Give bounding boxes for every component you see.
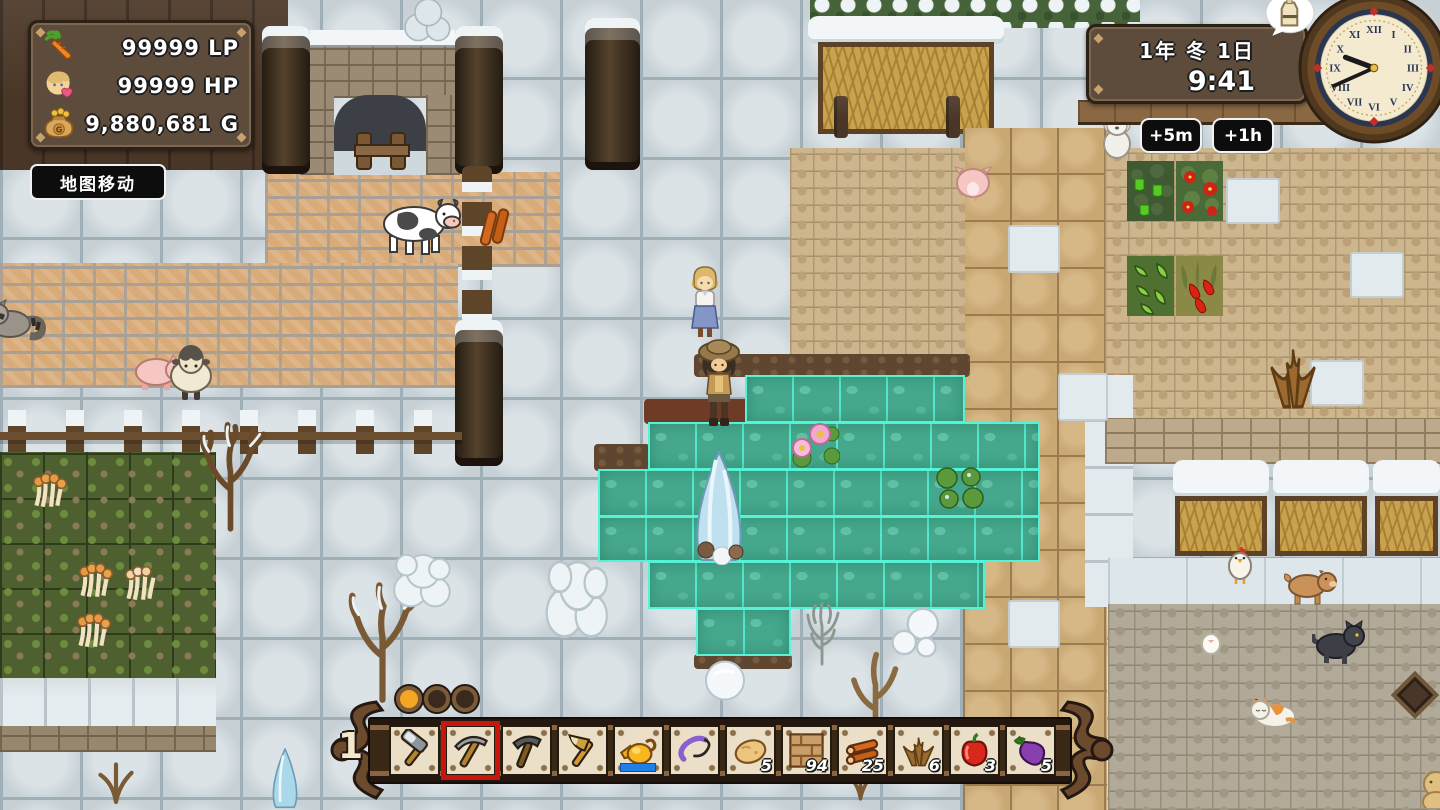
- svg-text:XI: XI: [1349, 30, 1361, 41]
- hammer-icon: [393, 729, 436, 772]
- crop-green-pepper[interactable]: [1127, 160, 1174, 222]
- feeding-stall: [1373, 460, 1440, 560]
- snow-tile: [1350, 252, 1404, 298]
- bare-tree: [188, 412, 273, 537]
- hotbar-slot-axe[interactable]: [557, 725, 608, 776]
- snow-band: [1108, 558, 1440, 608]
- svg-text:V: V: [1390, 97, 1398, 108]
- field-wall: [0, 678, 216, 730]
- mushroom-cluster[interactable]: [26, 472, 72, 510]
- brick-path-band: [0, 263, 458, 388]
- hotbar-slot-eggplant[interactable]: 5: [1005, 725, 1056, 776]
- pond-water-highlight[interactable]: [598, 516, 1040, 562]
- barn-roof-snow: [808, 16, 1004, 44]
- svg-text:VII: VII: [1347, 97, 1363, 108]
- svg-text:VI: VI: [1368, 103, 1380, 114]
- svg-text:XII: XII: [1366, 25, 1382, 36]
- player-character[interactable]: [697, 338, 741, 436]
- feeding-stall: [1173, 460, 1269, 560]
- tan-cat[interactable]: [1416, 770, 1440, 808]
- hotbar-slot-sickle[interactable]: [501, 725, 552, 776]
- snow-tile: [1058, 373, 1108, 421]
- lamppost: [585, 18, 640, 170]
- item-count: 94: [806, 756, 828, 775]
- snow-bush: [388, 538, 460, 616]
- money-bag-icon: G: [43, 106, 75, 142]
- hotbar-bar: 59425635: [368, 717, 1072, 784]
- hotbar-slot-logs[interactable]: 25: [837, 725, 888, 776]
- game-screen: { "hud": { "stats_panel": { "rows": [ {"…: [0, 0, 1440, 810]
- snow-bush: [398, 0, 460, 48]
- hotbar-slot-hammer[interactable]: [389, 725, 440, 776]
- item-count: 25: [862, 756, 884, 775]
- advance-5min-button[interactable]: +5m: [1140, 118, 1202, 153]
- calico-cat[interactable]: [1248, 694, 1298, 730]
- bench: [352, 132, 408, 166]
- carrot-icon: [43, 30, 75, 66]
- hp-value: 99999: [118, 74, 196, 98]
- lily-pads[interactable]: [933, 465, 988, 512]
- mushroom-cluster[interactable]: [72, 562, 118, 600]
- clock: XIIIIIIIIIVVVIVIIVIIIIXXXI: [1298, 0, 1440, 146]
- hotbar-page-dots[interactable]: [396, 686, 480, 716]
- hotbar-slot-dried-grass[interactable]: 6: [893, 725, 944, 776]
- barn-post: [834, 96, 848, 138]
- crop-chili[interactable]: [1176, 253, 1223, 319]
- lamppost: [262, 26, 310, 174]
- hotbar-page-dot-active[interactable]: [396, 686, 422, 712]
- svg-text:I: I: [1391, 30, 1395, 41]
- axe-icon: [561, 729, 604, 772]
- lamppost: [455, 320, 503, 466]
- pickaxe-icon: [449, 729, 492, 772]
- pond-water-highlight[interactable]: [696, 608, 791, 656]
- pond-water-highlight[interactable]: [745, 375, 965, 423]
- svg-text:G: G: [56, 126, 63, 135]
- hotbar-page-dot-inactive[interactable]: [424, 686, 450, 712]
- svg-text:III: III: [1407, 64, 1419, 75]
- portrait-icon: [43, 68, 75, 104]
- stone-wall-band: [1105, 418, 1440, 464]
- chick[interactable]: [1200, 628, 1222, 656]
- item-count: 5: [761, 756, 772, 775]
- field-wall-base: [0, 726, 216, 752]
- barn-post: [946, 96, 960, 138]
- whip-icon: [673, 729, 716, 772]
- item-count: 6: [929, 756, 940, 775]
- svg-text:X: X: [1336, 44, 1344, 55]
- hotbar-slot-bell-pepper[interactable]: 3: [949, 725, 1000, 776]
- crop-hibiscus[interactable]: [1176, 160, 1223, 222]
- lp-value: 99999: [122, 36, 200, 60]
- black-cat[interactable]: [1312, 620, 1367, 665]
- water-gauge: [620, 763, 656, 772]
- gold-row: G 9,880,681 G: [43, 105, 239, 143]
- stats-panel: 99999 LP 99999 HP G 9,880,681 G: [28, 20, 254, 150]
- snowball-pile: [888, 602, 946, 662]
- hotbar-slot-watering-can[interactable]: [613, 725, 664, 776]
- map-move-badge[interactable]: 地图移动: [30, 164, 166, 200]
- stacked-planks: [478, 203, 514, 251]
- item-count: 5: [1041, 756, 1052, 775]
- lp-row: 99999 LP: [43, 29, 239, 67]
- crop-beans[interactable]: [1127, 253, 1174, 319]
- hotbar-slot-pickaxe[interactable]: [445, 725, 496, 776]
- hotbar-slot-whip[interactable]: [669, 725, 720, 776]
- advance-1hour-button[interactable]: +1h: [1212, 118, 1274, 153]
- milk-jug-icon: [1282, 0, 1298, 25]
- item-count: 3: [985, 756, 996, 775]
- hp-row: 99999 HP: [43, 67, 239, 105]
- snow-tile: [1008, 225, 1060, 273]
- cow[interactable]: [370, 190, 470, 256]
- hotbar-page-number: 1: [338, 726, 363, 767]
- hotbar-page-dot-inactive[interactable]: [452, 686, 478, 712]
- lamppost: [455, 26, 503, 174]
- mushroom-cluster[interactable]: [70, 612, 116, 650]
- hotbar: 1 59425635: [330, 684, 1120, 794]
- ice-stalagmite[interactable]: [688, 450, 750, 565]
- sheep[interactable]: [168, 340, 214, 402]
- snow-bush: [540, 538, 618, 650]
- sickle-icon: [505, 729, 548, 772]
- svg-text:IX: IX: [1329, 64, 1341, 75]
- brown-dog[interactable]: [1281, 568, 1339, 606]
- hotbar-slot-potato[interactable]: 5: [725, 725, 776, 776]
- svg-text:IV: IV: [1402, 83, 1414, 94]
- pig-rear[interactable]: [952, 163, 994, 201]
- game-time: 9:41: [1103, 66, 1291, 97]
- twig: [90, 752, 142, 804]
- snow-tile: [1226, 178, 1280, 224]
- feeding-stall: [1273, 460, 1369, 560]
- dried-plant[interactable]: [1262, 332, 1324, 420]
- raccoon[interactable]: [0, 298, 46, 346]
- npc-girl[interactable]: [686, 264, 724, 344]
- gold-value: 9,880,681: [85, 112, 212, 136]
- chicken[interactable]: [1224, 546, 1256, 586]
- hp-unit: HP: [204, 74, 239, 98]
- gold-unit: G: [221, 112, 239, 136]
- game-date: 1年 冬 1日: [1103, 35, 1291, 64]
- pond-dirt-edge: [594, 444, 650, 471]
- ice-crystal: [260, 748, 310, 810]
- svg-text:II: II: [1404, 44, 1412, 55]
- hotbar-slot-brick-floor[interactable]: 94: [781, 725, 832, 776]
- lp-unit: LP: [208, 36, 239, 60]
- lotus-flowers[interactable]: [788, 420, 840, 468]
- mushroom-cluster[interactable]: [118, 565, 164, 603]
- snow-tile: [1008, 600, 1060, 648]
